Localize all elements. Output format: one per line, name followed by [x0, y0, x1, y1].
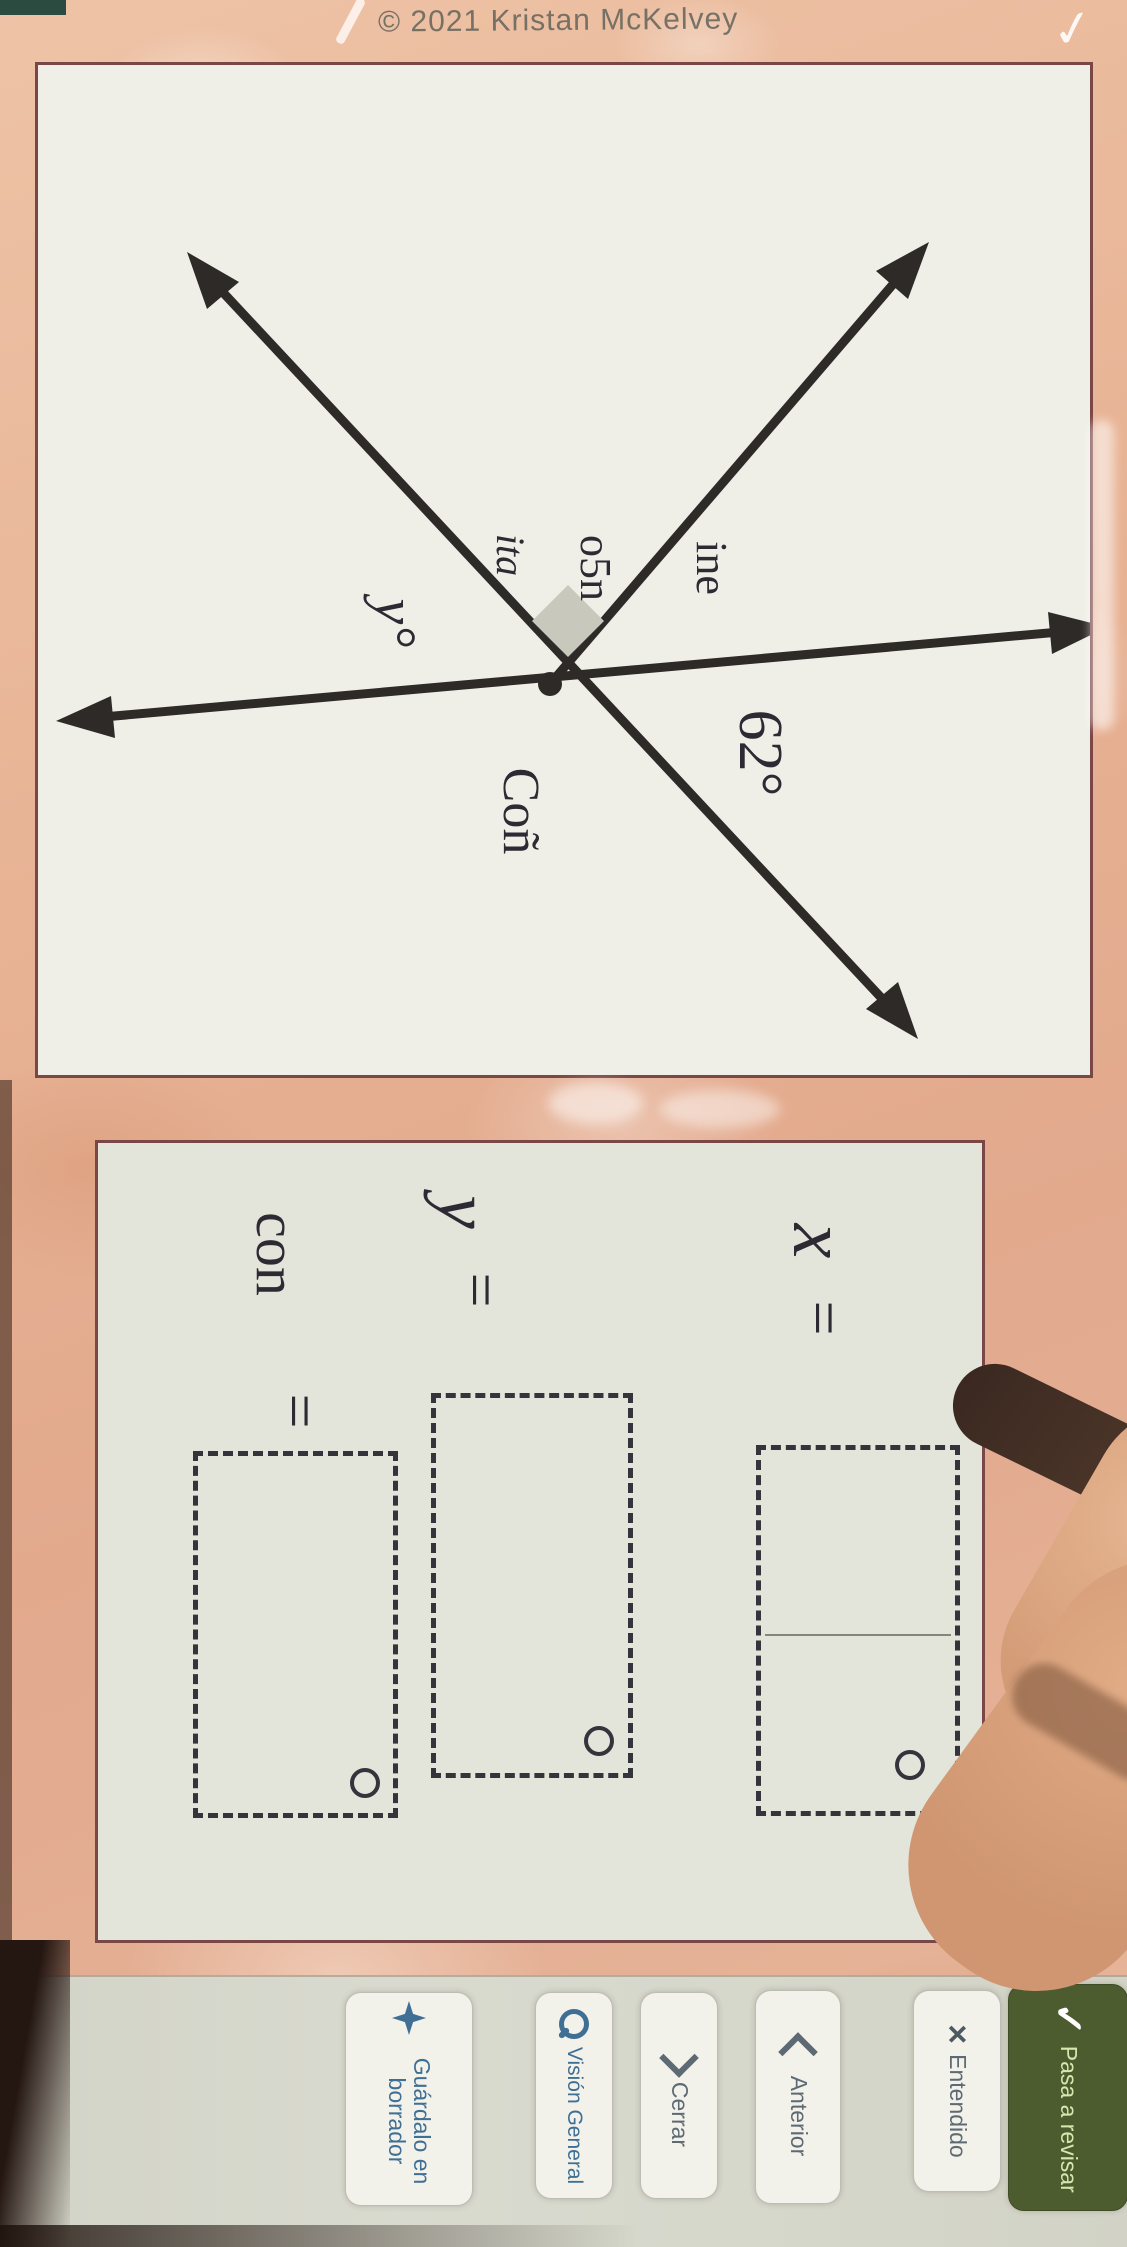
- photo-of-tablet-screen: © 2021 Kristan McKelvey ✓ y° 62° ine o5n…: [0, 0, 1127, 2247]
- button-label: Visión General: [562, 2047, 585, 2184]
- photo-edge-shadow: [0, 1080, 12, 1980]
- diagram-scribble: ita: [490, 534, 530, 576]
- close-x-icon: ×: [940, 2024, 974, 2044]
- arrowhead: [56, 696, 115, 738]
- arrowhead: [1048, 612, 1090, 654]
- screen-glare: [548, 1082, 643, 1124]
- vertex-point: [538, 672, 562, 696]
- answer-variable-con: con: [247, 1212, 305, 1296]
- answer-box-divider: [765, 1634, 951, 1636]
- magnifier-icon: [559, 2007, 589, 2037]
- diagram-scribble: Coñ: [494, 768, 546, 855]
- screen-glare: [1090, 420, 1114, 730]
- answer-box-con[interactable]: [193, 1451, 398, 1818]
- sparkle-star-icon: [392, 2001, 426, 2035]
- photo-edge-shadow: [0, 2225, 640, 2247]
- answer-variable-x: x: [781, 1224, 859, 1259]
- previous-button[interactable]: Anterior: [755, 1990, 841, 2204]
- dismiss-button[interactable]: × Entendido: [913, 1990, 1001, 2192]
- diagram-panel: y° 62° ine o5n ita Coñ: [35, 62, 1093, 1078]
- photo-corner-shadow: [0, 1940, 70, 2247]
- diagonal-line-a: [203, 271, 902, 1020]
- button-label: Anterior: [785, 2076, 810, 2157]
- button-label: Entendido: [944, 2054, 969, 2158]
- degree-symbol: [584, 1726, 614, 1756]
- equals-sign: =: [268, 1394, 330, 1429]
- submit-button[interactable]: ✓ Pasa a revisar: [1008, 1984, 1127, 2211]
- degree-symbol: [895, 1750, 925, 1780]
- button-label: Pasa a revisar: [1055, 2046, 1080, 2193]
- glare-streak: [335, 0, 366, 45]
- equals-sign: =: [449, 1273, 511, 1308]
- checkmark-icon: ✓: [1048, 2002, 1088, 2036]
- screen-glare: [660, 1090, 780, 1128]
- equals-sign: =: [792, 1301, 854, 1336]
- answer-box-x[interactable]: [756, 1445, 960, 1816]
- close-button[interactable]: Cerrar: [640, 1992, 718, 2199]
- corner-check-glyph: ✓: [1047, 0, 1098, 61]
- answer-box-y[interactable]: [431, 1393, 633, 1778]
- copyright-text: © 2021 Kristan McKelvey: [378, 2, 739, 39]
- ray-b: [550, 261, 913, 684]
- answers-panel: x = y = con =: [95, 1140, 985, 1943]
- chevron-left-icon: [778, 2032, 818, 2072]
- button-label: Guárdalo en borrador: [384, 2045, 435, 2197]
- angle-diagram: [38, 65, 1090, 1075]
- chevron-right-icon: [659, 2038, 699, 2078]
- toolbar: Guárdalo en borrador Visión General Cerr…: [0, 1975, 1127, 2247]
- save-draft-button[interactable]: Guárdalo en borrador: [345, 1992, 473, 2206]
- answer-variable-y: y: [427, 1195, 502, 1228]
- button-label: Cerrar: [666, 2082, 691, 2147]
- angle-label-y: y°: [366, 599, 424, 648]
- degree-symbol: [350, 1768, 380, 1798]
- overview-button[interactable]: Visión General: [535, 1992, 613, 2199]
- diagram-scribble: o5n: [573, 535, 617, 601]
- angle-label-62: 62°: [729, 710, 791, 797]
- screen-edge-strip: [0, 0, 66, 15]
- diagram-scribble: ine: [689, 541, 733, 595]
